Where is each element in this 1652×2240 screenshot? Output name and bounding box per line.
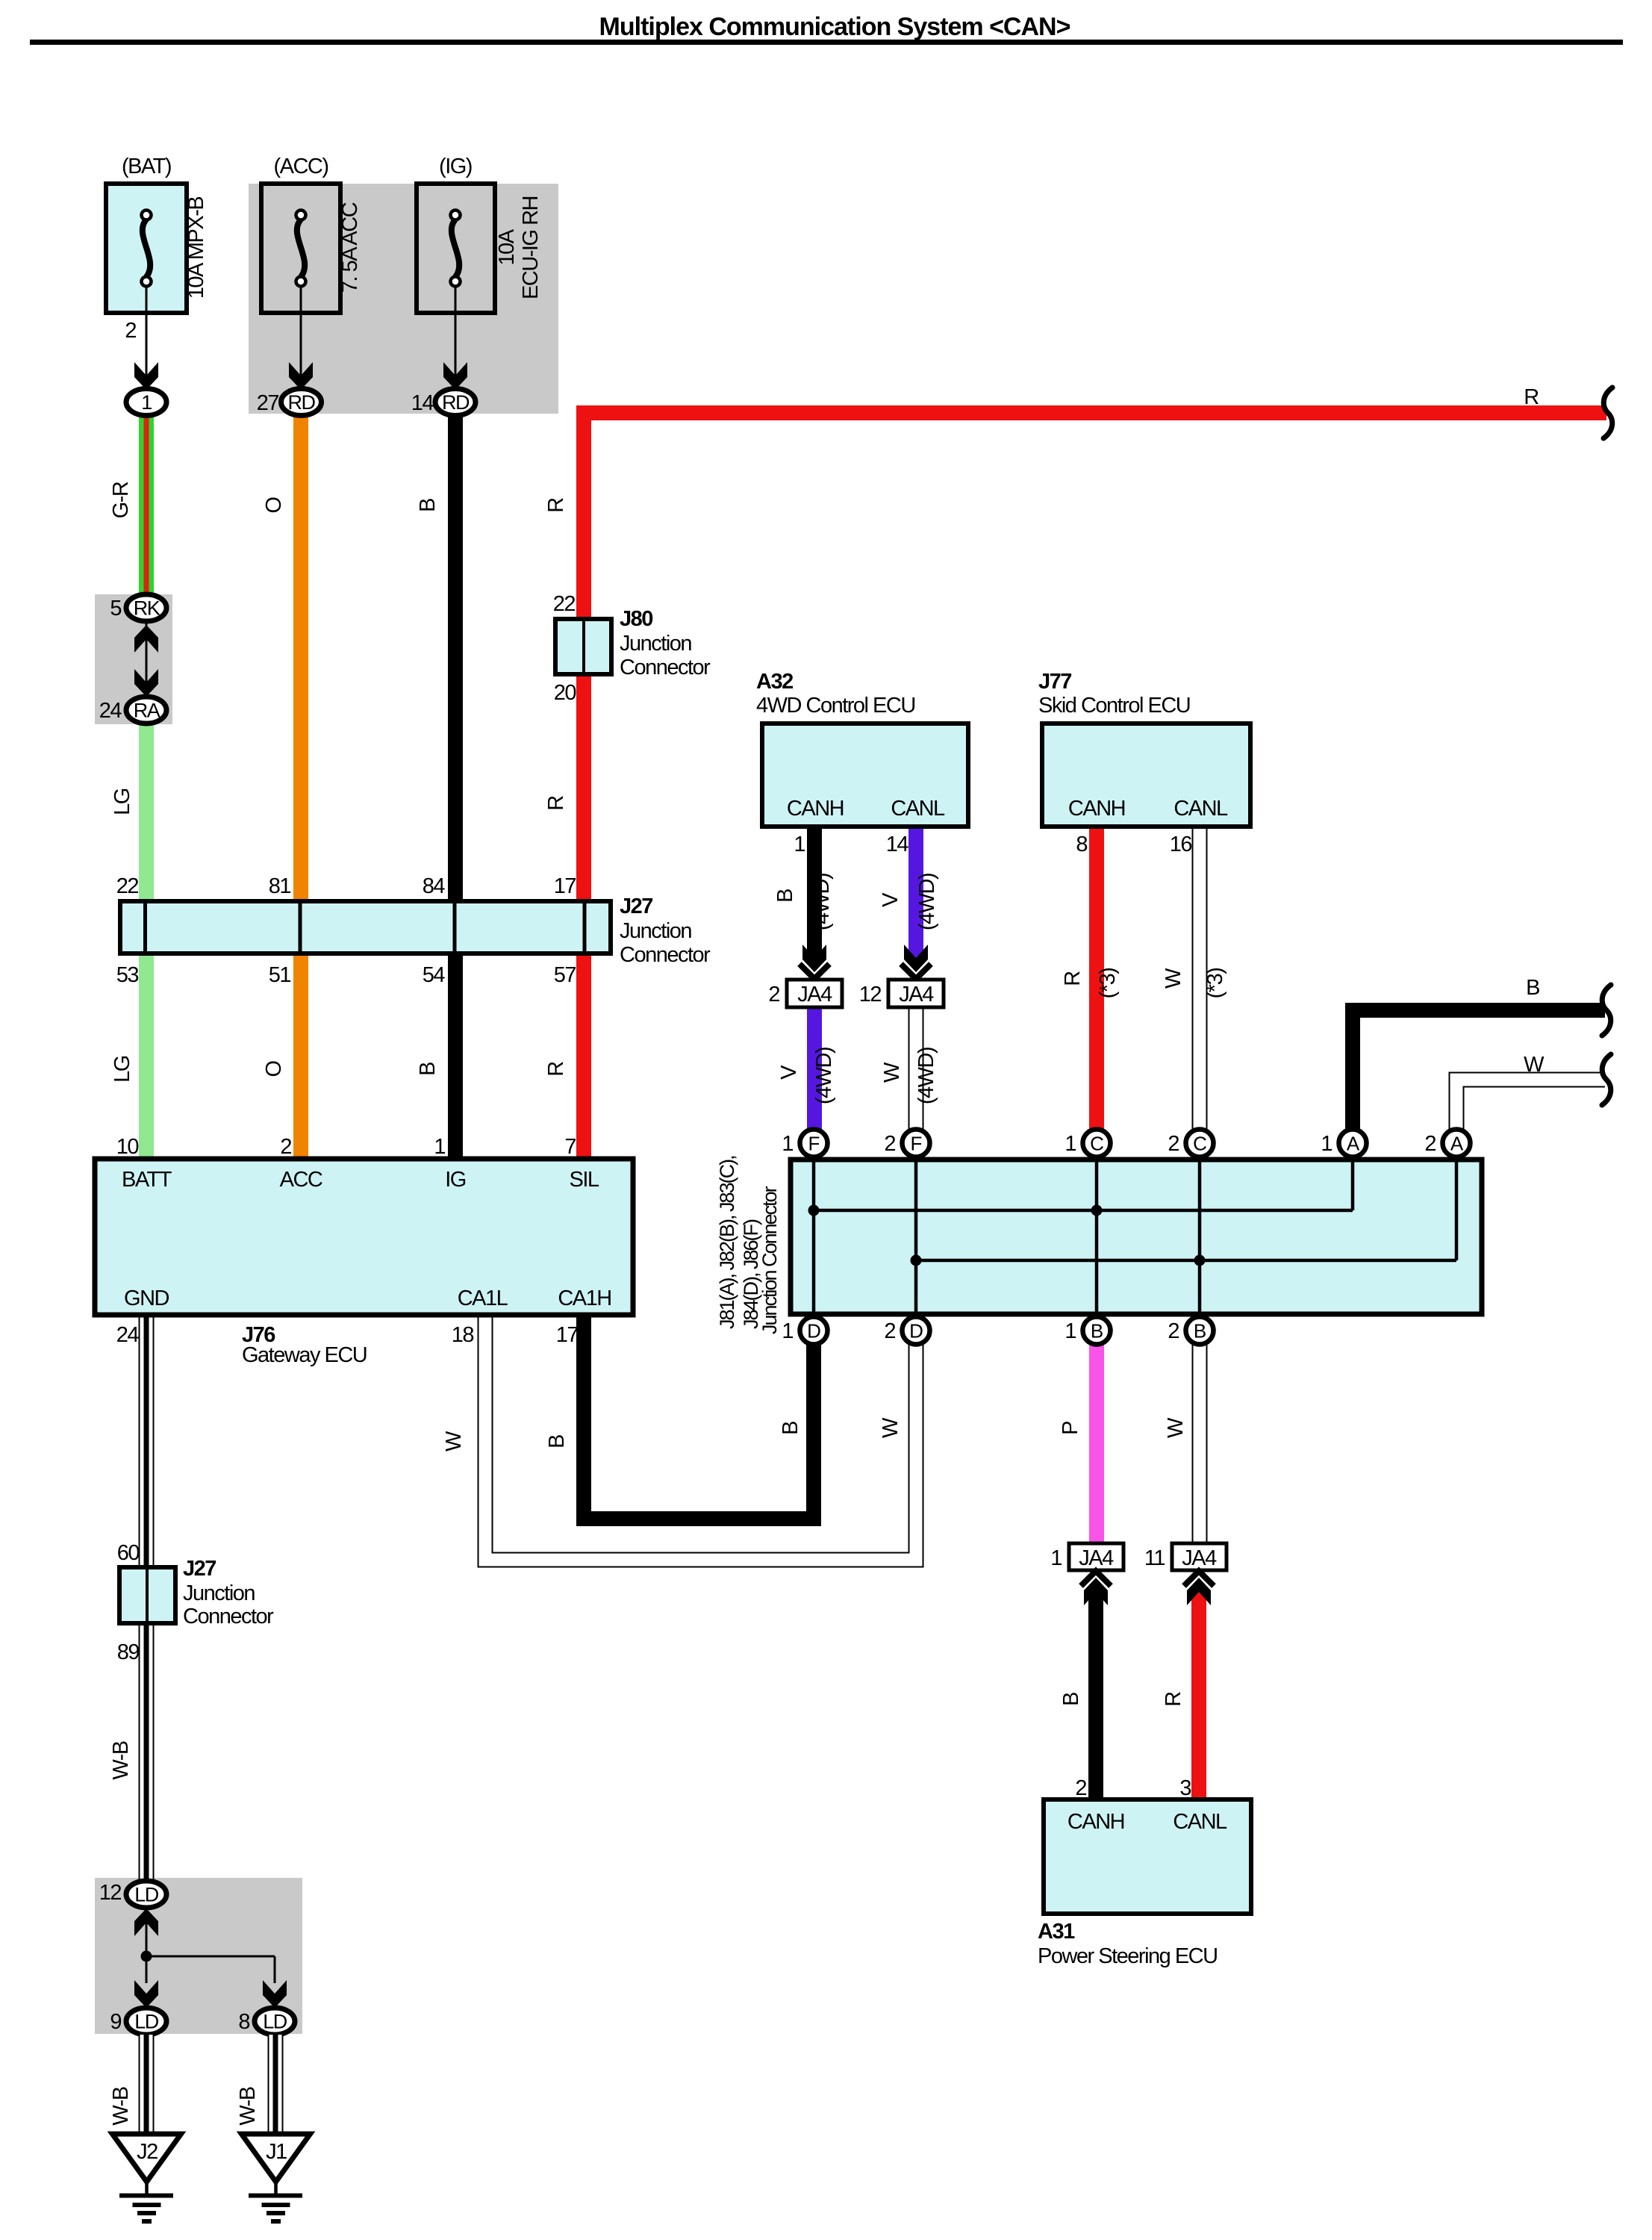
svg-text:17: 17 [556, 1323, 579, 1347]
svg-text:10A MPX-B: 10A MPX-B [184, 197, 208, 299]
svg-text:C: C [1193, 1133, 1206, 1155]
svg-text:LD: LD [134, 2011, 159, 2033]
svg-text:JA4: JA4 [1182, 1546, 1217, 1570]
svg-text:W: W [1164, 1417, 1188, 1438]
svg-text:LG: LG [110, 1056, 134, 1083]
svg-text:2: 2 [1424, 1132, 1436, 1156]
svg-text:R: R [544, 796, 568, 811]
svg-text:18: 18 [452, 1323, 474, 1347]
svg-text:54: 54 [423, 963, 446, 987]
svg-text:R: R [1061, 971, 1085, 986]
svg-text:R: R [1162, 1692, 1185, 1707]
svg-text:1: 1 [141, 391, 152, 414]
svg-text:7. 5A ACC: 7. 5A ACC [338, 202, 362, 293]
svg-text:R: R [544, 498, 568, 513]
svg-text:(BAT): (BAT) [122, 155, 171, 178]
svg-text:LD: LD [134, 1884, 159, 1906]
svg-text:2: 2 [125, 319, 136, 343]
svg-text:W-B: W-B [109, 2087, 133, 2126]
svg-text:22: 22 [553, 592, 576, 616]
svg-text:4WD Control ECU: 4WD Control ECU [756, 694, 915, 718]
svg-text:B: B [1091, 1320, 1103, 1343]
svg-text:(4WD): (4WD) [914, 1048, 938, 1104]
svg-text:Power Steering ECU: Power Steering ECU [1038, 1944, 1218, 1968]
svg-text:17: 17 [554, 874, 576, 898]
svg-text:5: 5 [110, 597, 121, 620]
svg-text:57: 57 [554, 963, 576, 987]
svg-text:89: 89 [117, 1640, 140, 1664]
svg-text:JA4: JA4 [1079, 1546, 1114, 1570]
svg-text:1: 1 [434, 1135, 445, 1159]
svg-text:1: 1 [794, 833, 805, 856]
svg-text:A: A [1347, 1133, 1360, 1155]
svg-text:J2: J2 [137, 2140, 158, 2164]
svg-text:Junction: Junction [620, 919, 691, 943]
svg-text:9: 9 [110, 2010, 121, 2034]
svg-text:12: 12 [99, 1881, 122, 1905]
svg-text:Multiplex Communication System: Multiplex Communication System <CAN> [599, 13, 1070, 41]
svg-text:W: W [880, 1062, 904, 1083]
svg-text:W-B: W-B [109, 1741, 133, 1780]
svg-text:JA4: JA4 [899, 983, 934, 1007]
svg-text:Junction Connector: Junction Connector [758, 1186, 781, 1334]
svg-text:7: 7 [564, 1135, 576, 1159]
svg-text:10: 10 [116, 1135, 139, 1159]
svg-text:24: 24 [99, 699, 122, 723]
svg-text:B: B [416, 1063, 440, 1076]
svg-text:60: 60 [117, 1541, 140, 1565]
svg-text:RD: RD [288, 391, 316, 414]
svg-text:1: 1 [782, 1319, 793, 1343]
svg-text:22: 22 [116, 874, 139, 898]
svg-text:(*3): (*3) [1203, 968, 1227, 999]
svg-text:1: 1 [1321, 1132, 1332, 1156]
svg-text:R: R [544, 1062, 568, 1077]
svg-text:(4WD): (4WD) [915, 874, 939, 930]
svg-text:J27: J27 [183, 1557, 216, 1581]
svg-text:8: 8 [1076, 833, 1087, 856]
svg-text:1: 1 [782, 1132, 793, 1156]
svg-text:CANH: CANH [787, 797, 844, 821]
svg-text:V: V [879, 892, 903, 907]
svg-text:J27: J27 [620, 895, 652, 918]
svg-text:Gateway ECU: Gateway ECU [242, 1343, 367, 1367]
svg-text:P: P [1059, 1422, 1082, 1435]
svg-text:2: 2 [884, 1132, 895, 1156]
svg-text:IG: IG [445, 1168, 466, 1192]
svg-text:Connector: Connector [183, 1605, 274, 1628]
svg-text:81: 81 [269, 874, 291, 898]
svg-text:1: 1 [1065, 1319, 1076, 1343]
svg-text:J1: J1 [266, 2140, 287, 2164]
svg-text:W: W [1524, 1053, 1545, 1077]
svg-text:8: 8 [238, 2010, 249, 2034]
svg-text:(4WD): (4WD) [810, 874, 834, 930]
svg-text:84: 84 [423, 874, 446, 898]
svg-text:ECU-IG RH: ECU-IG RH [519, 196, 543, 299]
svg-text:V: V [777, 1065, 801, 1080]
svg-text:CANL: CANL [891, 797, 945, 821]
svg-text:Junction: Junction [620, 632, 691, 656]
svg-text:53: 53 [116, 963, 139, 987]
svg-text:Connector: Connector [620, 656, 711, 679]
svg-text:D: D [909, 1320, 923, 1343]
svg-text:CA1H: CA1H [558, 1287, 611, 1310]
svg-text:C: C [1090, 1133, 1103, 1155]
svg-text:CANH: CANH [1068, 797, 1125, 821]
svg-text:24: 24 [116, 1323, 140, 1347]
svg-text:(IG): (IG) [439, 155, 472, 178]
svg-text:10A: 10A [495, 228, 519, 265]
svg-text:B: B [1194, 1320, 1206, 1343]
svg-text:J80: J80 [620, 607, 652, 631]
svg-text:A31: A31 [1038, 1920, 1075, 1944]
svg-text:14: 14 [411, 391, 434, 415]
svg-text:(ACC): (ACC) [273, 155, 328, 178]
svg-text:J81(A), J82(B), J83(C),: J81(A), J82(B), J83(C), [716, 1156, 738, 1329]
svg-text:LG: LG [110, 788, 134, 815]
svg-text:BATT: BATT [122, 1168, 172, 1192]
svg-text:ACC: ACC [280, 1168, 322, 1192]
svg-text:2: 2 [1168, 1132, 1179, 1156]
svg-text:W: W [442, 1431, 466, 1452]
svg-text:B: B [1526, 976, 1539, 1000]
svg-text:CANH: CANH [1067, 1810, 1124, 1834]
svg-text:G-R: G-R [109, 482, 133, 518]
svg-text:CA1L: CA1L [458, 1287, 508, 1310]
svg-text:RK: RK [134, 597, 160, 620]
svg-text:2: 2 [768, 983, 779, 1007]
svg-text:CANL: CANL [1173, 797, 1228, 821]
svg-text:RD: RD [442, 391, 470, 414]
svg-text:2: 2 [1075, 1776, 1086, 1800]
svg-text:12: 12 [859, 983, 882, 1007]
svg-text:Junction: Junction [183, 1581, 255, 1605]
svg-text:11: 11 [1144, 1546, 1165, 1570]
svg-text:F: F [808, 1133, 820, 1155]
svg-text:2: 2 [280, 1135, 291, 1159]
svg-text:CANL: CANL [1173, 1810, 1227, 1834]
svg-text:LD: LD [263, 2011, 287, 2033]
svg-text:O: O [262, 1061, 286, 1077]
svg-text:F: F [911, 1133, 922, 1155]
svg-text:B: B [545, 1435, 569, 1449]
svg-text:A32: A32 [756, 670, 793, 694]
svg-text:O: O [262, 497, 286, 514]
svg-text:J77: J77 [1038, 670, 1071, 694]
svg-text:RA: RA [134, 700, 160, 722]
svg-text:14: 14 [886, 833, 909, 856]
svg-text:B: B [773, 889, 797, 903]
svg-text:(*3): (*3) [1096, 968, 1120, 999]
svg-text:D: D [807, 1320, 820, 1343]
svg-text:JA4: JA4 [797, 983, 832, 1007]
svg-text:W: W [879, 1417, 903, 1438]
svg-text:16: 16 [1170, 833, 1192, 856]
svg-text:1: 1 [1050, 1546, 1062, 1570]
svg-text:27: 27 [257, 391, 279, 415]
svg-text:20: 20 [554, 681, 576, 705]
svg-text:A: A [1450, 1133, 1464, 1155]
svg-text:R: R [1524, 385, 1539, 409]
svg-text:Skid Control ECU: Skid Control ECU [1038, 694, 1190, 718]
svg-text:51: 51 [269, 963, 291, 987]
svg-text:B: B [779, 1422, 802, 1435]
svg-text:2: 2 [884, 1319, 895, 1343]
svg-text:GND: GND [124, 1287, 169, 1310]
svg-text:W: W [1162, 968, 1185, 989]
svg-text:W-B: W-B [236, 2087, 260, 2126]
svg-text:B: B [1059, 1693, 1083, 1706]
svg-text:(4WD): (4WD) [812, 1048, 836, 1104]
svg-text:B: B [416, 499, 440, 512]
svg-text:2: 2 [1168, 1319, 1179, 1343]
svg-text:3: 3 [1179, 1776, 1191, 1800]
svg-text:Connector: Connector [620, 943, 711, 967]
svg-text:1: 1 [1065, 1132, 1076, 1156]
svg-text:SIL: SIL [569, 1168, 599, 1192]
